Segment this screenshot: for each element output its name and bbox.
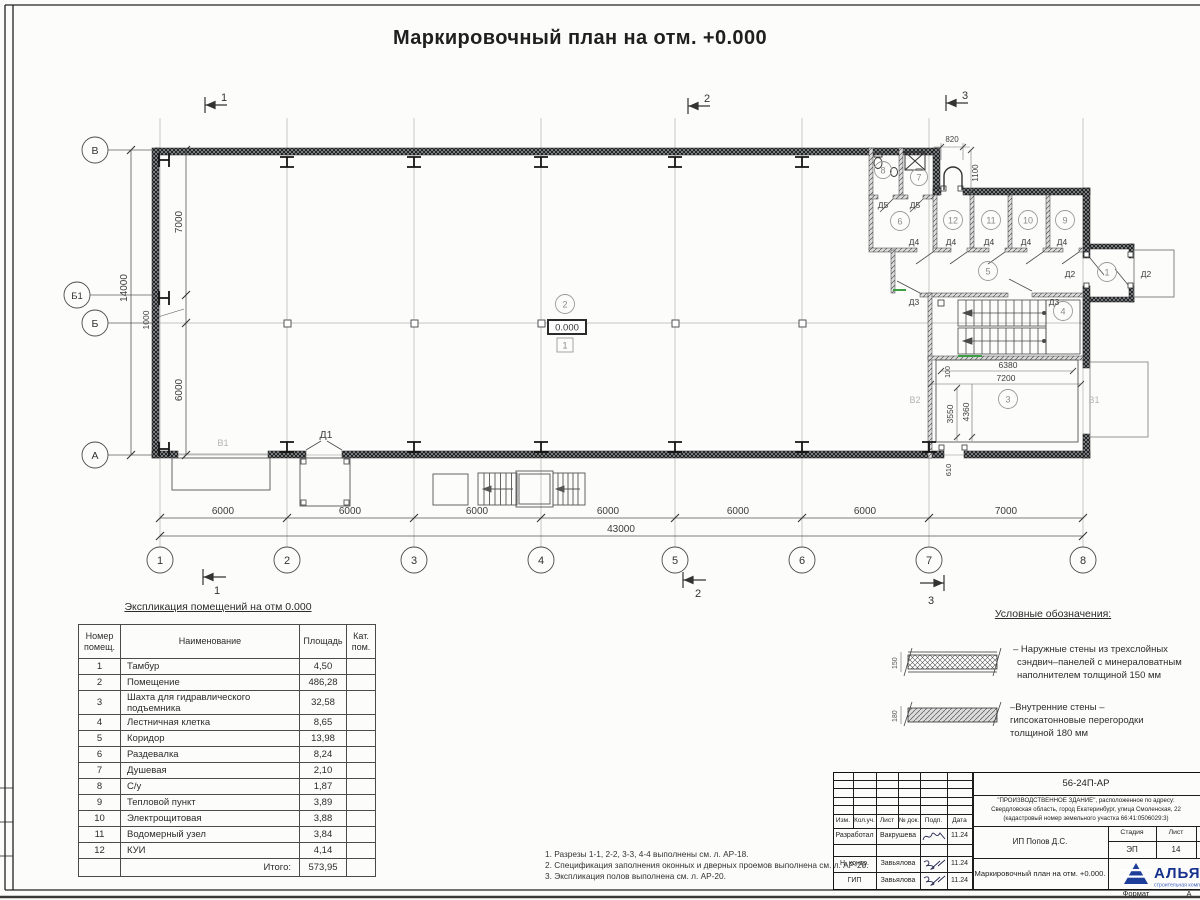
total-label: Итого: bbox=[121, 859, 300, 877]
logo-name: АЛЬЯНС bbox=[1154, 865, 1200, 882]
exterior-walls bbox=[152, 148, 1134, 458]
table-row: 11Водомерный узел3,84 bbox=[79, 827, 376, 843]
table-row: 2Помещение486,28 bbox=[79, 675, 376, 691]
svg-text:Д3: Д3 bbox=[1049, 297, 1060, 307]
format-value: А bbox=[1182, 889, 1196, 898]
floor-type: 1 bbox=[562, 341, 567, 351]
doc-number: 56-24П-АР bbox=[972, 772, 1200, 795]
svg-text:В2: В2 bbox=[909, 395, 920, 405]
svg-text:12: 12 bbox=[948, 216, 958, 226]
svg-text:1: 1 bbox=[214, 585, 220, 597]
role-ncontrol: Н. контр. bbox=[833, 856, 876, 872]
dim-total: 43000 bbox=[607, 524, 635, 535]
svg-text:Д4: Д4 bbox=[1021, 237, 1032, 247]
col-header-num: Номер помещ. bbox=[79, 625, 121, 659]
svg-text:Б1: Б1 bbox=[71, 291, 83, 302]
col-list: Лист bbox=[876, 814, 898, 828]
explication-title: Экспликация помещений на отм 0.000 bbox=[90, 601, 346, 613]
svg-text:7: 7 bbox=[926, 555, 932, 567]
note-3: 3. Экспликация полов выполнена см. л. АР… bbox=[545, 871, 875, 881]
dim-shaft-610: 610 bbox=[944, 464, 953, 477]
col-header-cat: Кат. пом. bbox=[347, 625, 376, 659]
signature-ncontrol bbox=[921, 857, 947, 872]
sheet-value: 14 bbox=[1156, 841, 1196, 858]
svg-text:2: 2 bbox=[284, 555, 290, 567]
sheets-label: Листов bbox=[1196, 826, 1200, 841]
format-label: Формат bbox=[1108, 889, 1164, 898]
page-title: Маркировочный план на отм. +0.000 bbox=[300, 27, 860, 50]
col-header-name: Наименование bbox=[121, 625, 300, 659]
legend-dim-150: 150 bbox=[892, 657, 899, 669]
columns bbox=[159, 153, 936, 456]
svg-text:9: 9 bbox=[1062, 216, 1067, 226]
sheets-value: 2 bbox=[1196, 841, 1200, 858]
svg-text:4: 4 bbox=[1060, 307, 1065, 317]
svg-text:Д2: Д2 bbox=[1065, 269, 1076, 279]
svg-text:5: 5 bbox=[672, 555, 678, 567]
client: ИП Попов Д.С. bbox=[972, 826, 1108, 858]
svg-text:Д4: Д4 bbox=[946, 237, 957, 247]
svg-text:2: 2 bbox=[704, 93, 710, 105]
table-row: 9Тепловой пункт3,89 bbox=[79, 795, 376, 811]
role-developer: Разработал bbox=[833, 828, 876, 844]
logo-tagline: строительная компания bbox=[1154, 883, 1200, 889]
legend-item1-line3: наполнителем толщиной 150 мм bbox=[1017, 669, 1161, 682]
legend-sample-interior: 180 bbox=[892, 702, 1001, 726]
svg-text:2: 2 bbox=[695, 588, 701, 600]
date-developer: 11.24 bbox=[947, 828, 972, 844]
svg-text:8: 8 bbox=[1080, 555, 1086, 567]
svg-text:3: 3 bbox=[962, 90, 968, 102]
svg-text:3: 3 bbox=[411, 555, 417, 567]
svg-text:6000: 6000 bbox=[212, 506, 235, 517]
svg-text:6000: 6000 bbox=[854, 506, 877, 517]
dim-shaft-6380: 6380 bbox=[999, 360, 1018, 370]
table-row: 5Коридор13,98 bbox=[79, 731, 376, 747]
door-labels: Д5 Д5 Д4 Д4 Д4 Д4 Д4 Д3 Д3 Д2 Д2 Д1 bbox=[320, 200, 1152, 441]
svg-text:В1: В1 bbox=[217, 438, 228, 448]
svg-text:1: 1 bbox=[1104, 268, 1109, 278]
table-row: 3Шахта для гидравлического подъемника32,… bbox=[79, 691, 376, 715]
svg-text:Д4: Д4 bbox=[984, 237, 995, 247]
logo-triangle-icon bbox=[1124, 863, 1148, 884]
svg-text:7000: 7000 bbox=[995, 506, 1018, 517]
svg-text:1: 1 bbox=[221, 92, 227, 104]
sheet-label: Лист bbox=[1156, 826, 1196, 841]
svg-text:А: А bbox=[91, 450, 98, 462]
svg-text:Б: Б bbox=[92, 318, 99, 330]
svg-text:Д1: Д1 bbox=[320, 429, 333, 441]
note-1: 1. Разрезы 1-1, 2-2, 3-3, 4-4 выполнены … bbox=[545, 849, 875, 859]
dim-entry-h: 1100 bbox=[971, 164, 980, 182]
col-data: Дата bbox=[947, 814, 972, 828]
svg-text:11: 11 bbox=[986, 216, 995, 226]
name-developer: Вакрушева bbox=[876, 828, 920, 844]
svg-text:4: 4 bbox=[538, 555, 544, 567]
sheet-title: Маркировочный план на отм. +0.000. bbox=[972, 858, 1108, 890]
grid-bubbles-bottom: 1 2 3 4 5 6 7 8 bbox=[147, 547, 1096, 573]
legend-item2-line2: гипсокатонновые перегородки bbox=[1010, 714, 1144, 727]
col-doc: № док. bbox=[898, 814, 920, 828]
note-2: 2. Спецификация заполнения оконных и две… bbox=[545, 860, 875, 870]
svg-text:6000: 6000 bbox=[727, 506, 750, 517]
section-flags: 1 2 3 1 2 3 bbox=[203, 90, 968, 607]
mid-columns bbox=[284, 320, 806, 327]
table-row: 8С/у1,87 bbox=[79, 779, 376, 795]
external-structures bbox=[172, 250, 1174, 507]
svg-text:Д5: Д5 bbox=[910, 200, 921, 210]
legend-item1-line1: – Наружные стены из трехслойных bbox=[1013, 643, 1168, 656]
title-block: Изм. Кол.уч. Лист № док. Подп. Дата Разр… bbox=[833, 772, 1200, 890]
legend-dim-180: 180 bbox=[892, 710, 899, 722]
date-ncontrol: 11.24 bbox=[947, 856, 972, 872]
stage-value: ЭП bbox=[1108, 841, 1156, 858]
level-mark: 0.000 bbox=[555, 323, 579, 334]
svg-text:3: 3 bbox=[928, 595, 934, 607]
role-gip: ГИП bbox=[833, 872, 876, 890]
svg-text:8: 8 bbox=[880, 166, 885, 176]
svg-text:3: 3 bbox=[1005, 395, 1010, 405]
room-numbers: 2 1 3 4 5 6 7 8 9 10 11 12 bbox=[556, 162, 1117, 409]
bottom-dim-labels: 6000 6000 6000 6000 6000 6000 7000 43000 bbox=[212, 506, 1018, 535]
svg-text:6: 6 bbox=[799, 555, 805, 567]
date-gip: 11.24 bbox=[947, 872, 972, 890]
name-gip: Завьялова bbox=[876, 872, 920, 890]
dim-shaft-7200: 7200 bbox=[997, 373, 1016, 383]
total-value: 573,95 bbox=[300, 859, 347, 877]
table-total-row: Итого: 573,95 bbox=[79, 859, 376, 877]
address-line3: (кадастровый номер земельного участка 66… bbox=[974, 814, 1198, 824]
svg-text:Д4: Д4 bbox=[909, 237, 920, 247]
table-row: 10Электрощитовая3,88 bbox=[79, 811, 376, 827]
svg-text:1000: 1000 bbox=[141, 310, 151, 329]
svg-text:7: 7 bbox=[916, 173, 921, 183]
svg-text:6000: 6000 bbox=[466, 506, 489, 517]
company-logo: АЛЬЯНС строительная компания bbox=[1110, 859, 1200, 889]
explication-table: Номер помещ. Наименование Площадь Кат. п… bbox=[78, 624, 376, 877]
svg-text:7000: 7000 bbox=[174, 210, 185, 233]
table-row: 1Тамбур4,50 bbox=[79, 659, 376, 675]
dim-shaft-100: 100 bbox=[945, 366, 952, 378]
legend-item2-line3: толщиной 180 мм bbox=[1010, 727, 1088, 740]
svg-text:14000: 14000 bbox=[119, 274, 130, 302]
col-podp: Подп. bbox=[920, 814, 947, 828]
table-row: 12КУИ4,14 bbox=[79, 843, 376, 859]
svg-text:Д3: Д3 bbox=[909, 297, 920, 307]
signature-gip bbox=[921, 873, 947, 888]
grid-bubbles-left: В Б1 Б А bbox=[64, 137, 152, 468]
svg-text:2: 2 bbox=[562, 300, 567, 310]
table-row: 7Душевая2,10 bbox=[79, 763, 376, 779]
shaft-outline bbox=[936, 360, 1148, 442]
svg-text:1: 1 bbox=[157, 555, 163, 567]
legend-item1-line2: сэндвич–панелей с минераловатным bbox=[1017, 656, 1182, 669]
svg-text:6: 6 bbox=[897, 217, 902, 227]
svg-text:10: 10 bbox=[1023, 216, 1033, 226]
svg-text:6000: 6000 bbox=[339, 506, 362, 517]
svg-text:В1: В1 bbox=[1088, 395, 1099, 405]
dim-shaft-3550: 3550 bbox=[945, 404, 955, 423]
svg-text:6000: 6000 bbox=[597, 506, 620, 517]
svg-text:Д2: Д2 bbox=[1141, 269, 1152, 279]
drawing-sheet: 820 1100 6380 7200 bbox=[0, 0, 1200, 900]
dim-entry-w: 820 bbox=[945, 135, 959, 144]
name-ncontrol: Завьялова bbox=[876, 856, 920, 872]
legend-sample-exterior: 150 bbox=[892, 648, 1001, 676]
legend-title: Условные обозначения: bbox=[963, 608, 1143, 620]
svg-text:6000: 6000 bbox=[174, 378, 185, 401]
col-kol: Кол.уч. bbox=[853, 814, 876, 828]
dim-shaft-4360: 4360 bbox=[961, 402, 971, 421]
svg-text:Д4: Д4 bbox=[1057, 237, 1068, 247]
stage-label: Стадия bbox=[1108, 826, 1156, 841]
svg-text:Д5: Д5 bbox=[878, 200, 889, 210]
signature-developer bbox=[921, 829, 947, 844]
svg-text:В: В bbox=[91, 145, 98, 157]
table-row: 6Раздевалка8,24 bbox=[79, 747, 376, 763]
table-row: 4Лестничная клетка8,65 bbox=[79, 715, 376, 731]
svg-text:5: 5 bbox=[985, 267, 990, 277]
legend-item2-line1: –Внутренние стены – bbox=[1010, 701, 1105, 714]
col-izm: Изм. bbox=[833, 814, 853, 828]
col-header-area: Площадь bbox=[300, 625, 347, 659]
